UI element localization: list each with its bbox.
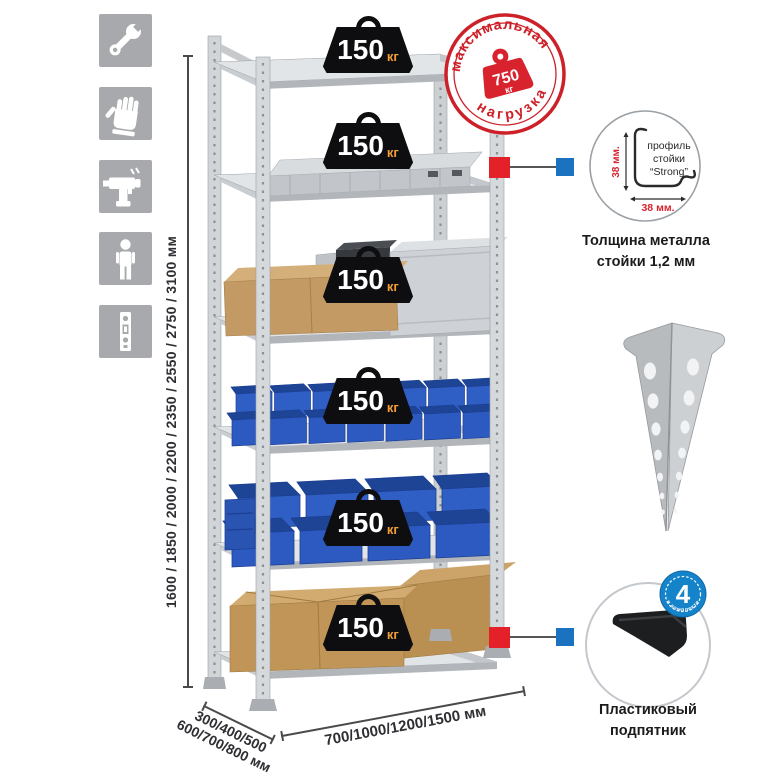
- load-unit: кг: [387, 146, 399, 159]
- count-badge-value: 4: [676, 579, 691, 609]
- rack-post-icon: [99, 305, 152, 358]
- connector-red-square-top: [489, 157, 510, 178]
- person-icon: [99, 232, 152, 285]
- connector-line-bottom: [510, 636, 556, 638]
- shelf-load-badge-2: 150кг: [322, 123, 414, 169]
- load-value: 150: [337, 266, 384, 294]
- corner-post-image: [600, 305, 740, 540]
- shelf-load-badge-4: 150кг: [322, 378, 414, 424]
- shelf-load-badge-3: 150кг: [322, 257, 414, 303]
- profile-label: “Strong”: [650, 166, 688, 178]
- load-value: 150: [337, 387, 384, 415]
- load-unit: кг: [387, 280, 399, 293]
- max-load-stamp: максимальная нагрузка 750 кг: [441, 10, 569, 138]
- shelf-load-badge-5: 150кг: [322, 500, 414, 546]
- connector-blue-square-top: [556, 158, 574, 176]
- count-badge: 4 в комплекте: [660, 571, 706, 617]
- connector-blue-square-bottom: [556, 628, 574, 646]
- work-gloves-icon: [99, 87, 152, 140]
- load-unit: кг: [387, 401, 399, 414]
- connector-line-top: [510, 166, 556, 168]
- post-profile-detail: 38 мм. 38 мм. профиль стойки “Strong”: [585, 108, 705, 228]
- profile-dim-vertical: 38 мм.: [611, 146, 622, 178]
- profile-dim-horizontal: 38 мм.: [641, 202, 674, 214]
- load-value: 150: [337, 132, 384, 160]
- profile-label: профиль: [647, 140, 691, 152]
- shelving-infographic: { "infographic": { "icons": ["wrench", "…: [0, 0, 765, 765]
- wrench-icon: [99, 14, 152, 67]
- load-unit: кг: [387, 523, 399, 536]
- load-value: 150: [337, 509, 384, 537]
- shelf-load-badge-6: 150кг: [322, 605, 414, 651]
- load-value: 150: [337, 614, 384, 642]
- drill-icon: [99, 160, 152, 213]
- foot-caption: Пластиковый подпятник: [565, 700, 731, 742]
- height-dimension-line: [187, 55, 189, 688]
- load-value: 150: [337, 36, 384, 64]
- profile-label: стойки: [653, 153, 685, 165]
- load-unit: кг: [387, 50, 399, 63]
- load-unit: кг: [387, 628, 399, 641]
- shelf-load-badge-1: 150кг: [322, 27, 414, 73]
- profile-caption: Толщина металла стойки 1,2 мм: [560, 231, 732, 273]
- connector-red-square-bottom: [489, 627, 510, 648]
- plastic-foot-detail: 4 в комплекте: [585, 568, 725, 708]
